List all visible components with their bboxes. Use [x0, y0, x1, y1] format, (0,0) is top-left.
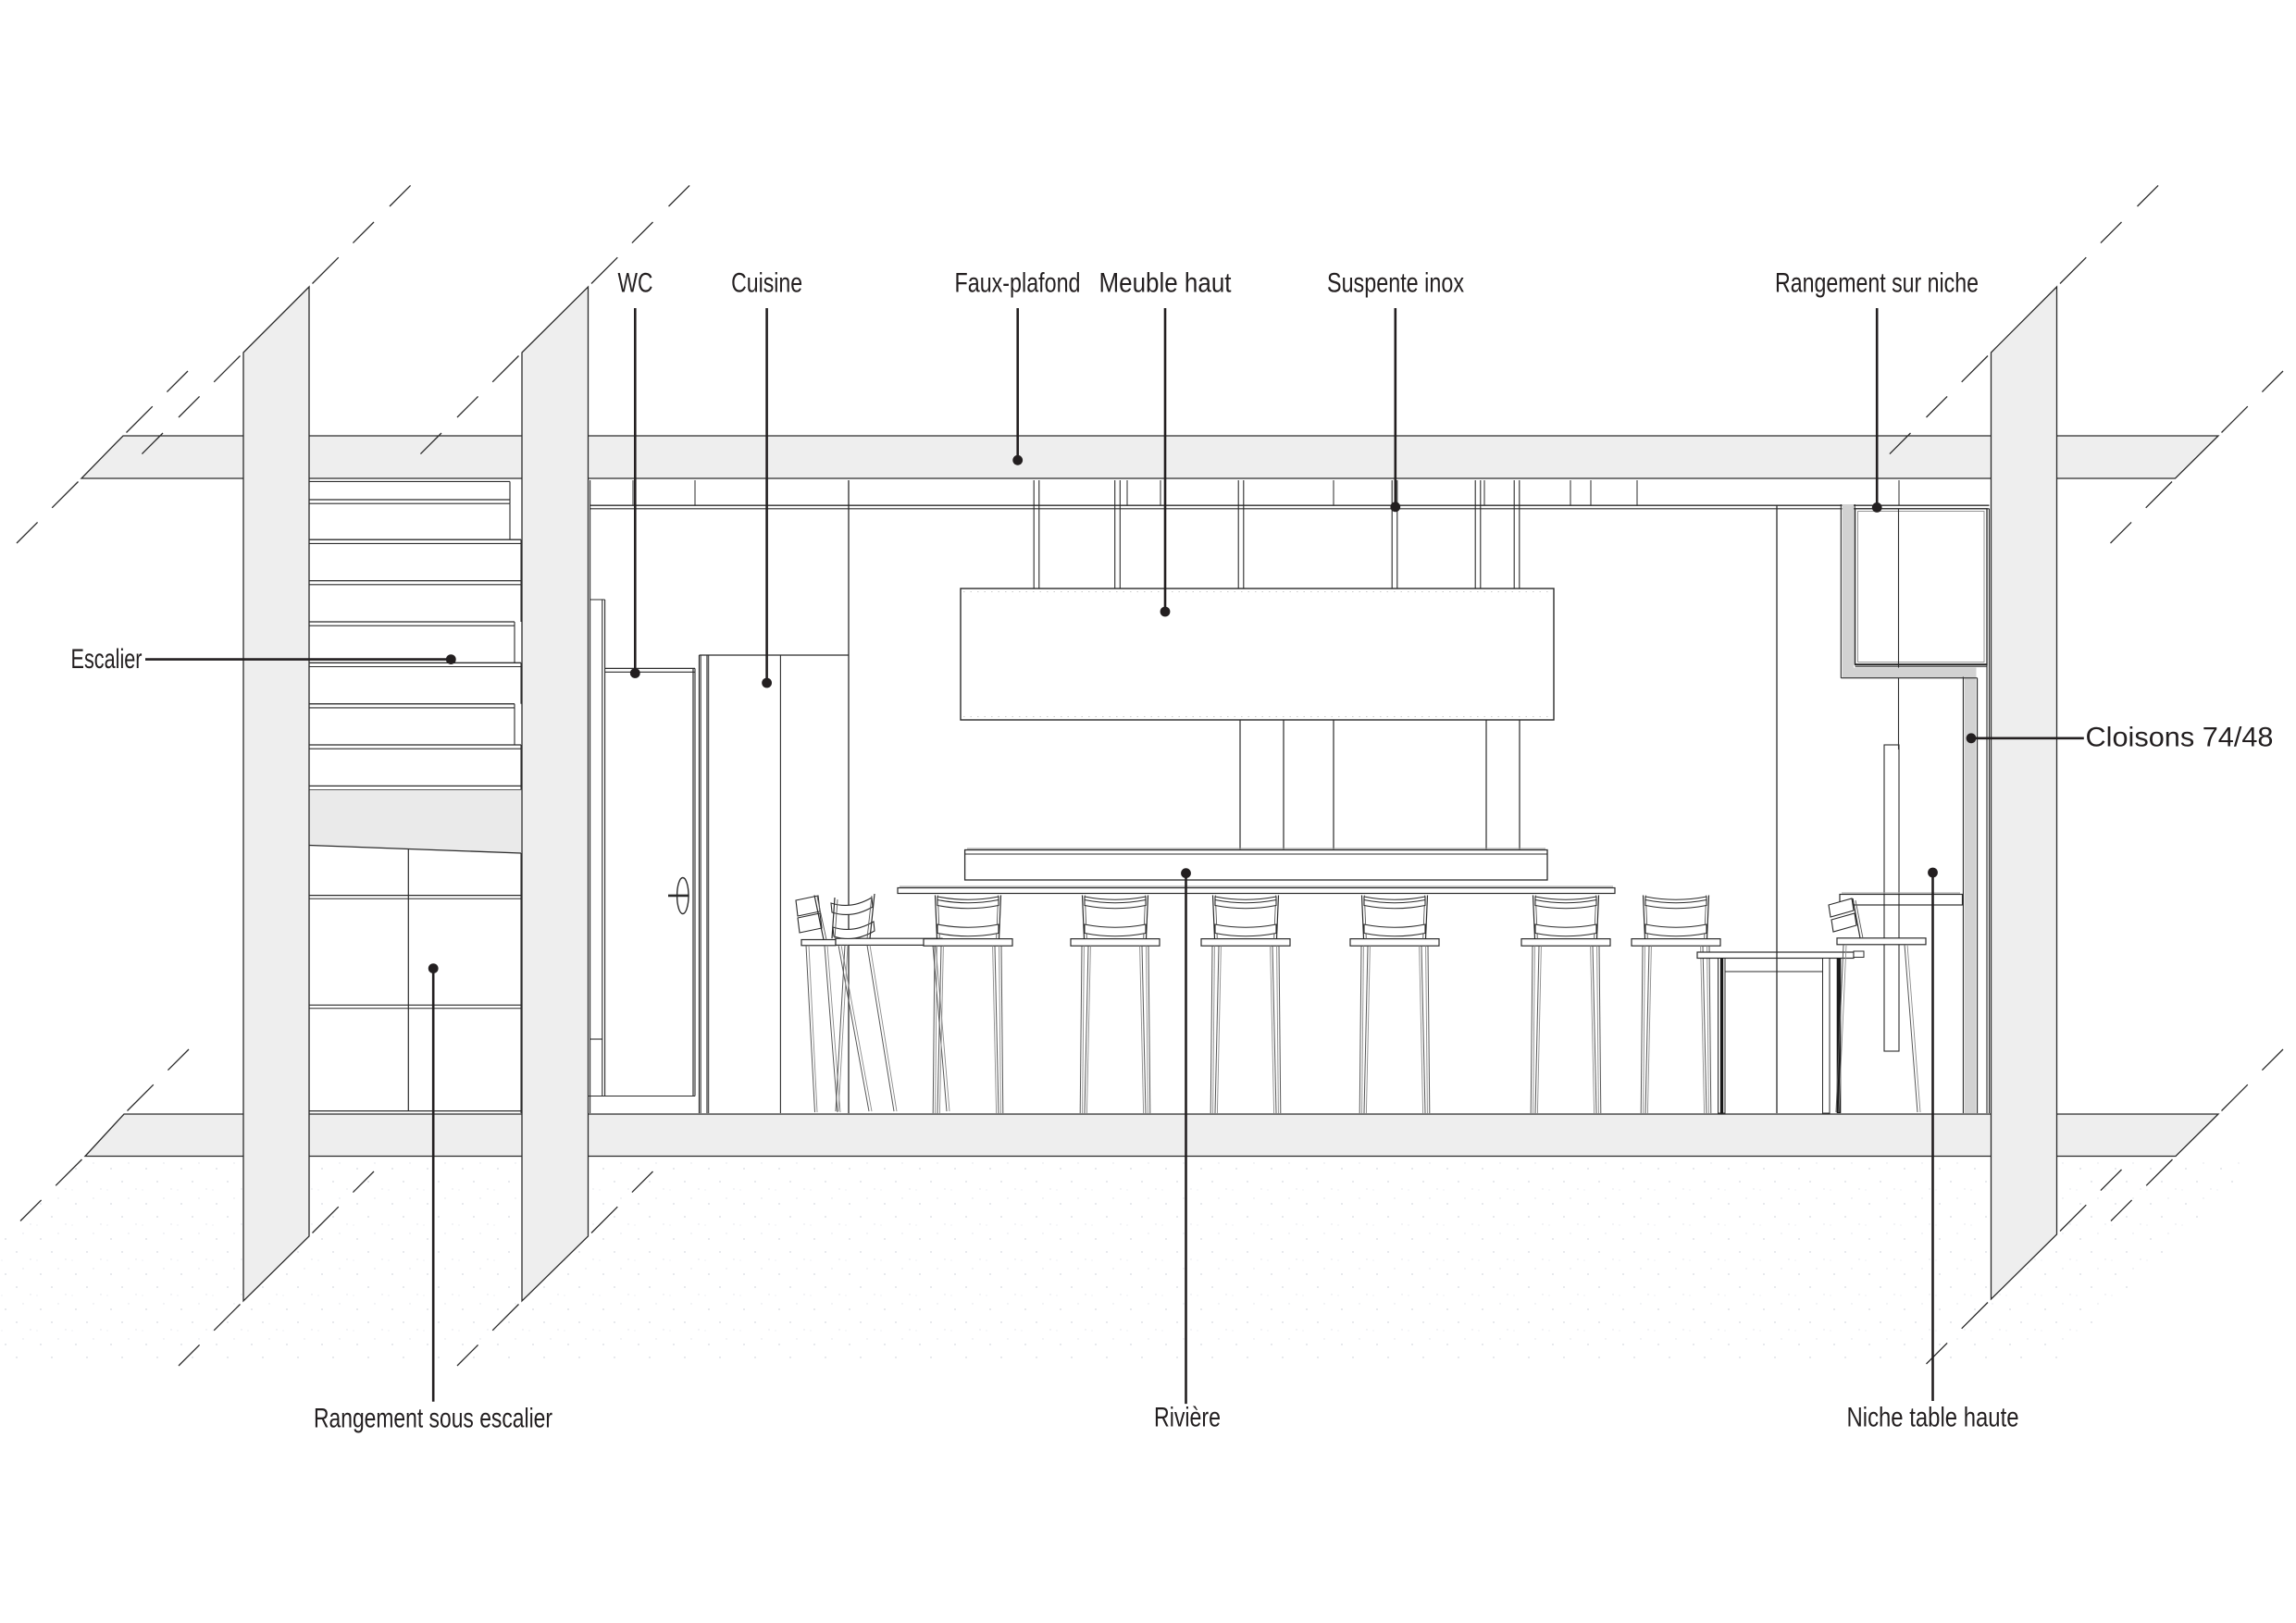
svg-text:Niche table haute: Niche table haute: [1847, 1403, 2019, 1433]
svg-text:Cuisine: Cuisine: [731, 268, 802, 299]
svg-text:Rangement sous escalier: Rangement sous escalier: [314, 1404, 552, 1434]
svg-text:Cloisons 74/48: Cloisons 74/48: [2086, 723, 2274, 753]
svg-text:Escalier: Escalier: [71, 644, 143, 675]
svg-text:Faux-plafond: Faux-plafond: [955, 268, 1081, 299]
svg-text:Rangement sur niche: Rangement sur niche: [1775, 268, 1979, 299]
svg-text:Rivière: Rivière: [1154, 1403, 1221, 1433]
svg-text:Meuble haut: Meuble haut: [1099, 268, 1233, 299]
svg-text:WC: WC: [618, 268, 653, 299]
svg-text:Suspente inox: Suspente inox: [1327, 268, 1464, 299]
